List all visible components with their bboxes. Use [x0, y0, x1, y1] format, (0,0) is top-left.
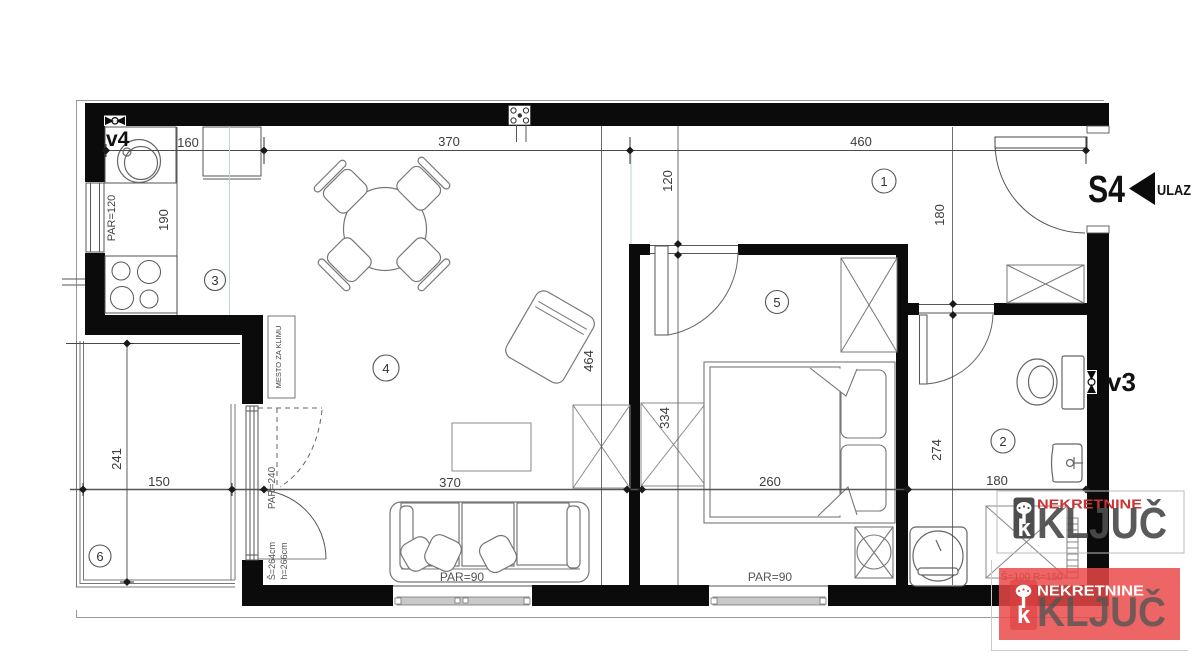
svg-text:370: 370	[439, 475, 461, 490]
svg-text:1: 1	[880, 174, 887, 189]
svg-text:v4: v4	[106, 128, 130, 151]
svg-text:5: 5	[773, 295, 780, 310]
svg-text:260: 260	[759, 474, 781, 489]
svg-text:241: 241	[109, 448, 124, 470]
svg-text:PAR=240: PAR=240	[267, 466, 278, 509]
svg-text:274: 274	[929, 439, 944, 461]
svg-text:180: 180	[986, 473, 1008, 488]
svg-text:S4: S4	[1088, 169, 1125, 211]
svg-text:3: 3	[211, 273, 218, 288]
svg-text:MESTO ZA KLIMU: MESTO ZA KLIMU	[274, 326, 283, 389]
svg-text:150: 150	[148, 474, 170, 489]
svg-text:160: 160	[177, 135, 199, 150]
svg-text:2: 2	[999, 434, 1006, 449]
svg-text:120: 120	[660, 170, 675, 192]
svg-text:180: 180	[932, 204, 947, 226]
svg-text:Š=264cm: Š=264cm	[267, 542, 277, 580]
svg-text:PAR=90: PAR=90	[748, 570, 792, 584]
svg-text:334: 334	[657, 407, 672, 429]
svg-text:h=266cm: h=266cm	[279, 542, 289, 579]
svg-text:KLJUČ: KLJUČ	[1037, 497, 1167, 548]
svg-text:k: k	[1018, 515, 1032, 542]
svg-text:PAR=90: PAR=90	[440, 570, 484, 584]
svg-text:k: k	[1017, 602, 1031, 629]
svg-text:460: 460	[850, 134, 872, 149]
svg-text:6: 6	[96, 549, 103, 564]
svg-text:190: 190	[156, 209, 171, 231]
svg-text:464: 464	[581, 350, 596, 372]
svg-text:v3: v3	[1107, 367, 1136, 397]
svg-text:PAR=120: PAR=120	[106, 195, 118, 242]
svg-text:KLJUČ: KLJUČ	[1037, 587, 1166, 635]
svg-text:370: 370	[438, 134, 460, 149]
svg-text:4: 4	[382, 361, 389, 376]
svg-text:ULAZ: ULAZ	[1157, 182, 1191, 199]
